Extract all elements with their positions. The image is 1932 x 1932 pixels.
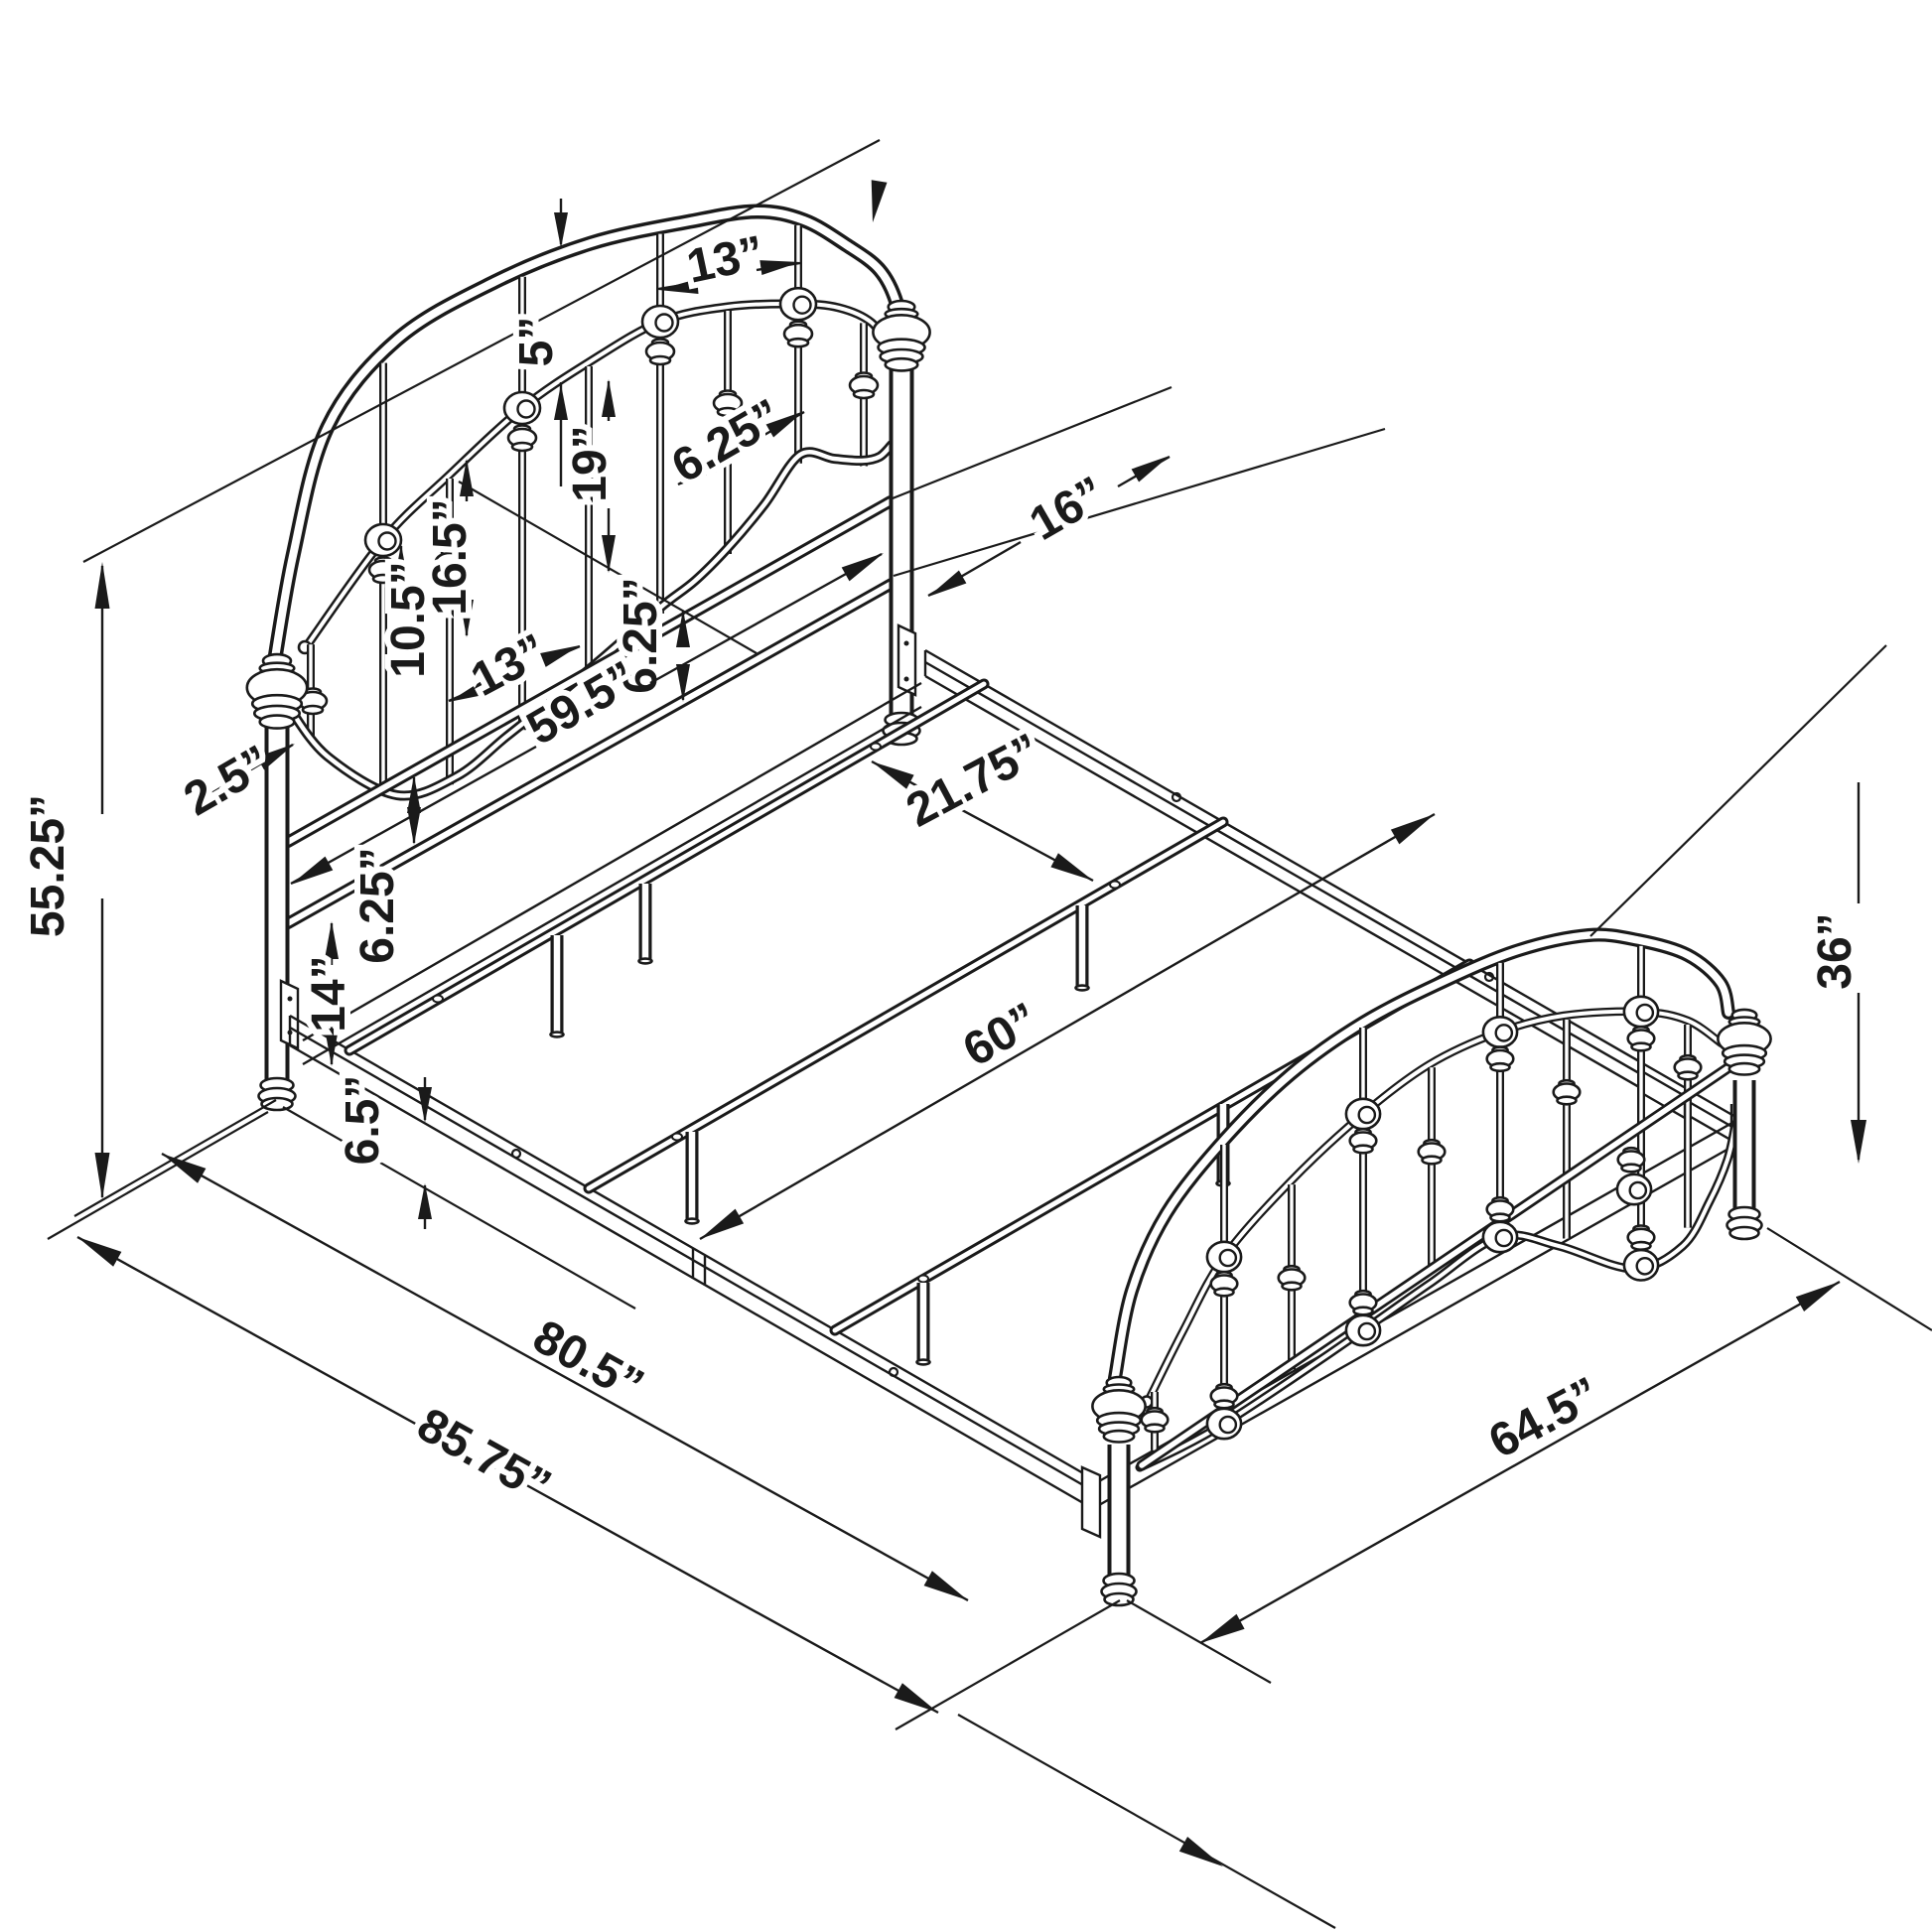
svg-text:10.5”: 10.5” [382,561,435,677]
svg-text:5”: 5” [510,317,563,367]
svg-text:36”: 36” [1809,912,1862,989]
svg-text:55.25”: 55.25” [22,794,74,937]
svg-text:6.25”: 6.25” [351,847,404,963]
svg-text:14”: 14” [303,955,355,1032]
svg-text:19”: 19” [564,425,617,501]
svg-text:6.5”: 6.5” [337,1075,389,1166]
